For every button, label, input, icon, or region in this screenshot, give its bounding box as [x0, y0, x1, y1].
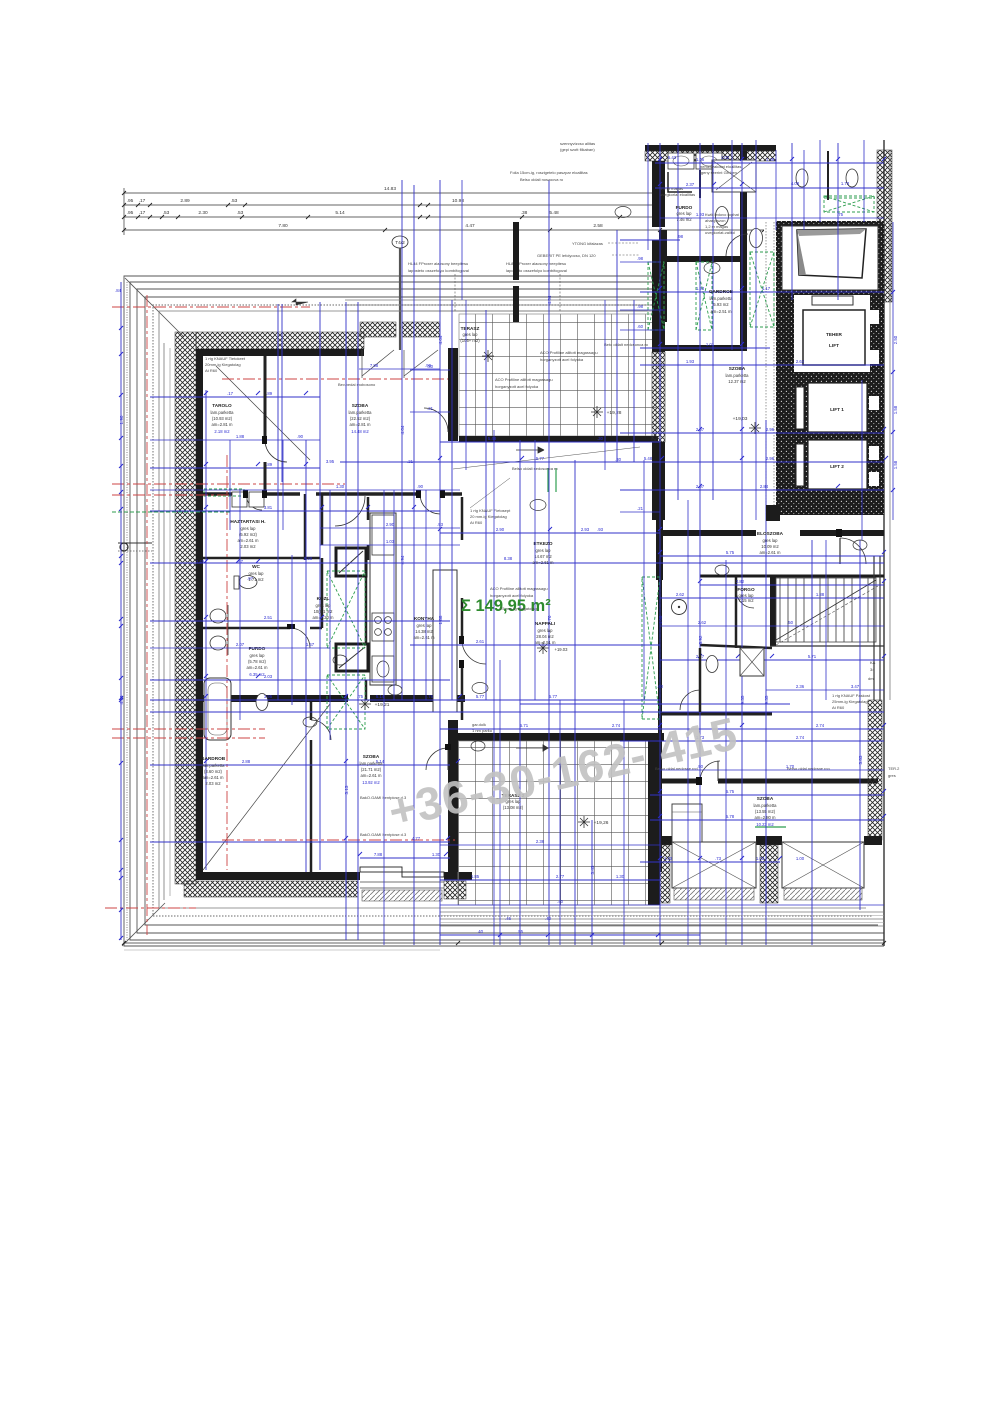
svg-text:1.93: 1.93 [696, 286, 705, 291]
svg-text:NAPPALI: NAPPALI [535, 621, 555, 626]
svg-text:.93: .93 [597, 527, 604, 532]
svg-text:5.75: 5.75 [726, 789, 735, 794]
svg-text:TAROLO: TAROLO [212, 403, 232, 408]
svg-text:(3.60 m2): (3.60 m2) [204, 769, 223, 774]
svg-text:.17: .17 [139, 198, 146, 204]
svg-text:+19,26: +19,26 [594, 820, 609, 826]
svg-text:.40: .40 [545, 916, 552, 921]
svg-text:gres lap: gres lap [677, 211, 693, 216]
svg-text:2.30: 2.30 [198, 210, 208, 216]
svg-text:horganyzott acel folyoka: horganyzott acel folyoka [495, 384, 539, 389]
svg-text:lam.parketta: lam.parketta [210, 410, 234, 415]
svg-text:7.88: 7.88 [370, 363, 379, 368]
svg-text:lapostetо osszefolyo kombifogo: lapostetо osszefolyo kombifogoval [408, 268, 469, 273]
svg-text:.98: .98 [637, 256, 644, 261]
svg-text:14.67 m2: 14.67 m2 [534, 554, 552, 559]
svg-text:.21: .21 [637, 506, 644, 511]
svg-text:WC: WC [252, 564, 260, 569]
svg-text:gres lap: gres lap [417, 623, 433, 628]
svg-text:25 mm-ig Kiegatolag: 25 mm-ig Kiegatolag [500, 606, 537, 611]
svg-text:.90: .90 [417, 484, 424, 489]
svg-text:FORGO: FORGO [737, 587, 755, 592]
svg-text:3.81: 3.81 [264, 505, 273, 510]
svg-text:horganyzott acel folyoka: horganyzott acel folyoka [540, 357, 584, 362]
svg-text:1.58: 1.58 [893, 460, 898, 469]
svg-text:10.23 m2: 10.23 m2 [756, 822, 774, 827]
svg-text:1.33: 1.33 [664, 856, 673, 861]
svg-text:2.93: 2.93 [581, 527, 590, 532]
svg-text:uvegkorlat-valltol: uvegkorlat-valltol [705, 230, 735, 235]
svg-text:uvegkorlat eloallitas: uvegkorlat eloallitas [660, 192, 695, 197]
svg-text:SZOBA: SZOBA [363, 754, 380, 759]
svg-text:(5.92 m2): (5.92 m2) [239, 532, 258, 537]
svg-text:TER.2: TER.2 [888, 766, 900, 771]
svg-text:1.70: 1.70 [786, 764, 795, 769]
svg-text:2.58: 2.58 [593, 223, 603, 229]
svg-text:am=2.61 m: am=2.61 m [246, 665, 268, 670]
svg-text:.75: .75 [837, 212, 844, 217]
svg-text:2.90: 2.90 [386, 522, 395, 527]
svg-text:9.35: 9.35 [740, 695, 745, 704]
svg-text:am=2.51 m: am=2.51 m [534, 640, 556, 645]
svg-text:7.15 m2: 7.15 m2 [738, 598, 754, 603]
svg-text:5.71: 5.71 [808, 654, 817, 659]
svg-text:am=2.61 m: am=2.61 m [202, 775, 224, 780]
svg-text:7.80: 7.80 [278, 223, 288, 229]
svg-text:T4/2: T4/2 [395, 240, 405, 246]
svg-text:3.47: 3.47 [851, 684, 860, 689]
svg-text:3.43: 3.43 [590, 865, 595, 874]
svg-text:10.98: 10.98 [452, 198, 464, 204]
svg-text:1.48: 1.48 [766, 157, 775, 162]
svg-text:5.43: 5.43 [668, 155, 677, 160]
svg-text:Belso oldali noszocva ro: Belso oldali noszocva ro [520, 177, 564, 182]
svg-text:LIFT 1: LIFT 1 [830, 407, 844, 412]
svg-text:8.38: 8.38 [304, 556, 313, 561]
svg-text:2.03 m2: 2.03 m2 [205, 781, 221, 786]
svg-text:3.13: 3.13 [344, 785, 349, 794]
svg-text:.30: .30 [597, 436, 604, 441]
svg-text:5.78: 5.78 [726, 814, 735, 819]
svg-text:am=2.81 m: am=2.81 m [211, 422, 233, 427]
svg-text:.17: .17 [139, 210, 146, 216]
svg-text:GEBERIT PE lefolyocso, DN 120: GEBERIT PE lefolyocso, DN 120 [537, 253, 596, 258]
svg-text:LIFT 2: LIFT 2 [830, 464, 844, 469]
svg-text:am=2.61 m: am=2.61 m [759, 550, 781, 555]
svg-text:2.74: 2.74 [796, 735, 805, 740]
svg-text:1.90: 1.90 [119, 415, 124, 424]
svg-text:am=2.61 m: am=2.61 m [413, 635, 435, 640]
svg-text:28.04 m2: 28.04 m2 [536, 634, 554, 639]
svg-text:5.48: 5.48 [549, 210, 559, 216]
svg-text:.38: .38 [521, 210, 528, 216]
svg-text:1.85: 1.85 [471, 874, 480, 879]
svg-text:5.77: 5.77 [536, 456, 545, 461]
svg-text:lam.parketta: lam.parketta [709, 296, 733, 301]
svg-text:am=2.80 m: am=2.80 m [754, 815, 776, 820]
svg-text:ACO Profiline allitott magassa: ACO Profiline allitott magassagu [490, 586, 548, 591]
svg-text:Beto oldalt nedcsonca ro: Beto oldalt nedcsonca ro [604, 342, 649, 347]
svg-text:20mm-ig Kiegatolag: 20mm-ig Kiegatolag [205, 362, 241, 367]
svg-text:Kwik ledovo rophat: Kwik ledovo rophat [705, 212, 740, 217]
svg-text:(gepi szott filkaban): (gepi szott filkaban) [560, 147, 595, 152]
svg-text:TEHER: TEHER [826, 332, 843, 337]
svg-text:At R60: At R60 [832, 705, 845, 710]
svg-text:1.93: 1.93 [696, 212, 705, 217]
svg-text:FURDO: FURDO [676, 205, 693, 210]
svg-text:.50: .50 [787, 620, 794, 625]
svg-text:At R60: At R60 [470, 520, 483, 525]
svg-text:14.48 m2: 14.48 m2 [351, 429, 369, 434]
svg-text:3.95: 3.95 [326, 459, 335, 464]
svg-text:dm: dm [868, 676, 874, 681]
svg-text:14.83: 14.83 [384, 186, 396, 192]
svg-text:2.03: 2.03 [264, 674, 273, 679]
svg-text:.21: .21 [407, 459, 414, 464]
svg-text:1.49: 1.49 [196, 559, 205, 564]
svg-text:2.62: 2.62 [676, 592, 685, 597]
svg-text:lam.parketta: lam.parketta [348, 410, 372, 415]
svg-text:lam.parketta: lam.parketta [359, 761, 383, 766]
svg-text:2.51: 2.51 [264, 615, 273, 620]
svg-text:.95: .95 [127, 210, 134, 216]
svg-text:gres lap: gres lap [763, 538, 779, 543]
svg-text:YTONG kifalazas: YTONG kifalazas [572, 241, 603, 246]
svg-text:25mm-ig Kiegatolag: 25mm-ig Kiegatolag [832, 699, 868, 704]
svg-text:horganyzott acel folyoka: horganyzott acel folyoka [490, 593, 534, 598]
svg-text:4.08: 4.08 [658, 615, 663, 624]
svg-text:5.48: 5.48 [644, 456, 653, 461]
svg-text:2.84: 2.84 [760, 484, 769, 489]
svg-text:+19,03: +19,03 [733, 416, 748, 422]
svg-text:2.36: 2.36 [536, 839, 545, 844]
svg-text:1.30: 1.30 [336, 484, 345, 489]
svg-text:1.17: 1.17 [762, 286, 771, 291]
svg-text:1,2 m magas: 1,2 m magas [660, 186, 683, 191]
svg-text:4.47: 4.47 [465, 223, 475, 229]
svg-text:SZOBA: SZOBA [729, 366, 746, 371]
svg-text:1.03: 1.03 [756, 856, 765, 861]
svg-text:ETKEZO: ETKEZO [533, 541, 552, 546]
svg-text:Folia 15cm-ig, roszigetelo pas: Folia 15cm-ig, roszigetelo paszpar eloal… [510, 170, 588, 175]
svg-text:4.04: 4.04 [400, 425, 405, 434]
svg-text:.53: .53 [163, 210, 170, 216]
svg-text:1.01: 1.01 [706, 342, 715, 347]
svg-text:1.30: 1.30 [616, 874, 625, 879]
svg-text:2.37: 2.37 [686, 182, 695, 187]
svg-text:.17: .17 [227, 391, 234, 396]
svg-text:7.88: 7.88 [374, 852, 383, 857]
svg-text:5.71: 5.71 [520, 723, 529, 728]
svg-text:lam.parketta: lam.parketta [201, 763, 225, 768]
svg-text:1 rtg KNAUF Tietokeet: 1 rtg KNAUF Tietokeet [205, 356, 246, 361]
svg-text:1,2 m magas: 1,2 m magas [705, 224, 728, 229]
svg-text:5.14: 5.14 [376, 694, 385, 699]
svg-text:1.46: 1.46 [696, 157, 705, 162]
svg-text:1.88: 1.88 [236, 434, 245, 439]
svg-text:am=2.51 m: am=2.51 m [710, 309, 732, 314]
svg-text:HAZTARTASI H.: HAZTARTASI H. [230, 519, 265, 524]
svg-text:szennyvizcso allitas: szennyvizcso allitas [560, 141, 595, 146]
svg-text:.30: .30 [615, 457, 622, 462]
svg-text:am=2.61 m: am=2.61 m [237, 538, 259, 543]
svg-text:gres lap: gres lap [463, 332, 479, 337]
svg-text:(10.93 m2): (10.93 m2) [212, 416, 233, 421]
svg-text:.75: .75 [427, 694, 434, 699]
svg-text:.53: .53 [237, 210, 244, 216]
svg-text:(22.52 m2): (22.52 m2) [350, 416, 371, 421]
svg-text:1.47: 1.47 [306, 642, 315, 647]
svg-text:(5.78 m2): (5.78 m2) [248, 659, 267, 664]
svg-text:ELOSZOBA: ELOSZOBA [757, 531, 784, 536]
svg-text:.60: .60 [637, 324, 644, 329]
svg-text:(105+ m2): (105+ m2) [460, 338, 480, 343]
svg-text:1.30: 1.30 [432, 852, 441, 857]
svg-text:5.77: 5.77 [476, 694, 485, 699]
svg-text:gres lap: gres lap [538, 628, 554, 633]
svg-text:2.50: 2.50 [893, 335, 898, 344]
svg-text:2.97: 2.97 [696, 484, 705, 489]
svg-text:ahany szon: ahany szon [705, 218, 725, 223]
svg-text:GARDROB: GARDROB [201, 756, 226, 761]
svg-text:At R60: At R60 [205, 368, 218, 373]
svg-text:ACO Profiline allitott magassa: ACO Profiline allitott magassagu [540, 350, 598, 355]
svg-text:2.62: 2.62 [698, 620, 707, 625]
svg-text:.90: .90 [297, 434, 304, 439]
svg-text:20 mm-ig Kiegatolag: 20 mm-ig Kiegatolag [470, 514, 507, 519]
svg-text:TERASZ: TERASZ [461, 326, 480, 331]
svg-text:gres: gres [888, 773, 896, 778]
svg-text:igeny szerint Gb-ben: igeny szerint Gb-ben [700, 170, 737, 175]
svg-text:1 rtg KNAUF Paskost: 1 rtg KNAUF Paskost [832, 693, 871, 698]
svg-text:KA: KA [870, 660, 876, 665]
svg-text:2.74: 2.74 [816, 723, 825, 728]
svg-text:1.93: 1.93 [686, 359, 695, 364]
svg-text:3.83: 3.83 [858, 755, 863, 764]
svg-text:5.93 m2: 5.93 m2 [713, 302, 729, 307]
svg-text:1 rtg KNAUF Fietosept: 1 rtg KNAUF Fietosept [470, 508, 511, 513]
svg-text:.98: .98 [637, 304, 644, 309]
svg-text:4.94: 4.94 [400, 555, 405, 564]
svg-text:am=2.81 m: am=2.81 m [349, 422, 371, 427]
svg-text:(21.71 m2): (21.71 m2) [361, 767, 382, 772]
svg-text:.21: .21 [427, 406, 434, 411]
svg-text:gres lap: gres lap [536, 548, 552, 553]
svg-text:am=2.61 m: am=2.61 m [360, 773, 382, 778]
svg-text:+19,21: +19,21 [375, 702, 390, 708]
svg-text:1.88: 1.88 [816, 592, 825, 597]
svg-text:4.54: 4.54 [547, 295, 552, 304]
svg-text:Bev.bedai mobosono: Bev.bedai mobosono [338, 382, 376, 387]
svg-text:1.02: 1.02 [721, 155, 730, 160]
svg-text:2.89: 2.89 [180, 198, 190, 204]
svg-text:5.14: 5.14 [335, 210, 345, 216]
svg-text:lam.parketta: lam.parketta [725, 373, 749, 378]
svg-text:am=2.61 m: am=2.61 m [532, 560, 554, 565]
svg-text:2.74: 2.74 [612, 723, 621, 728]
svg-text:nemesvakolat eloallitas: nemesvakolat eloallitas [700, 164, 741, 169]
svg-text:+19.03: +19.03 [555, 647, 569, 652]
svg-text:SZOBA: SZOBA [757, 796, 774, 801]
svg-text:10.09 m2: 10.09 m2 [761, 544, 779, 549]
svg-text:8.38: 8.38 [504, 556, 513, 561]
svg-text:5.48: 5.48 [488, 436, 497, 441]
svg-text:.93: .93 [437, 522, 444, 527]
svg-text:2.62: 2.62 [796, 359, 805, 364]
svg-text:gres lap: gres lap [241, 526, 257, 531]
svg-text:1.88: 1.88 [438, 615, 443, 624]
svg-text:lam.parketta: lam.parketta [753, 803, 777, 808]
svg-text:.53: .53 [231, 198, 238, 204]
svg-text:GARDROB: GARDROB [709, 289, 734, 294]
svg-text:ACO Profiline allitott magassa: ACO Profiline allitott magassagu [495, 377, 553, 382]
svg-text:4.77: 4.77 [412, 836, 421, 841]
svg-text:.30: .30 [427, 364, 434, 369]
svg-text:gres lap: gres lap [250, 653, 266, 658]
svg-text:.75: .75 [357, 694, 364, 699]
svg-text:.95: .95 [517, 929, 524, 934]
svg-text:2.61: 2.61 [476, 639, 485, 644]
svg-text:.95: .95 [127, 198, 134, 204]
svg-text:12.37 m2: 12.37 m2 [728, 379, 746, 384]
svg-text:KOZL: KOZL [317, 596, 330, 601]
svg-text:.46: .46 [505, 916, 512, 921]
svg-text:2.96: 2.96 [766, 456, 775, 461]
svg-text:.40: .40 [477, 929, 484, 934]
svg-text:3.95: 3.95 [264, 694, 273, 699]
svg-text:4.04: 4.04 [438, 335, 443, 344]
svg-text:1.58: 1.58 [893, 405, 898, 414]
svg-text:.60: .60 [657, 684, 664, 689]
svg-text:gres lap: gres lap [316, 603, 332, 608]
svg-text:2.36: 2.36 [796, 684, 805, 689]
svg-text:1.03: 1.03 [386, 539, 395, 544]
svg-text:(13.55 m2): (13.55 m2) [755, 809, 776, 814]
svg-text:2.18 m2: 2.18 m2 [214, 429, 230, 434]
svg-text:.73: .73 [715, 856, 722, 861]
svg-text:4.08: 4.08 [791, 181, 800, 186]
svg-text:2.96: 2.96 [766, 427, 775, 432]
svg-text:9.35: 9.35 [764, 695, 769, 704]
svg-text:2.03 m2: 2.03 m2 [240, 544, 256, 549]
svg-text:5.77: 5.77 [549, 694, 558, 699]
svg-text:HL84 FProxer alacsony beepites: HL84 FProxer alacsony beepitesu [408, 261, 468, 266]
svg-text:+19,28: +19,28 [607, 410, 622, 416]
svg-text:SZOBA: SZOBA [352, 403, 369, 408]
svg-text:2.82: 2.82 [736, 579, 745, 584]
svg-text:1.73: 1.73 [841, 181, 850, 186]
svg-text:.84: .84 [115, 288, 122, 293]
svg-text:3.92: 3.92 [698, 635, 703, 644]
svg-text:14.38 m2: 14.38 m2 [415, 629, 433, 634]
svg-text:.97: .97 [247, 576, 254, 581]
svg-text:34: 34 [870, 667, 875, 672]
svg-text:.98: .98 [677, 234, 684, 239]
svg-text:13.92 m2: 13.92 m2 [362, 780, 380, 785]
svg-text:LIFT: LIFT [829, 343, 839, 348]
svg-text:2.90: 2.90 [496, 527, 505, 532]
svg-text:KONYHA: KONYHA [414, 616, 435, 621]
svg-text:5.75: 5.75 [726, 550, 735, 555]
svg-text:2.97: 2.97 [696, 427, 705, 432]
svg-text:1 nm parku: 1 nm parku [472, 728, 492, 733]
svg-text:1.00: 1.00 [796, 856, 805, 861]
svg-text:FURDO: FURDO [249, 646, 266, 651]
svg-text:2.88: 2.88 [242, 759, 251, 764]
svg-text:gar.dolk: gar.dolk [472, 722, 486, 727]
